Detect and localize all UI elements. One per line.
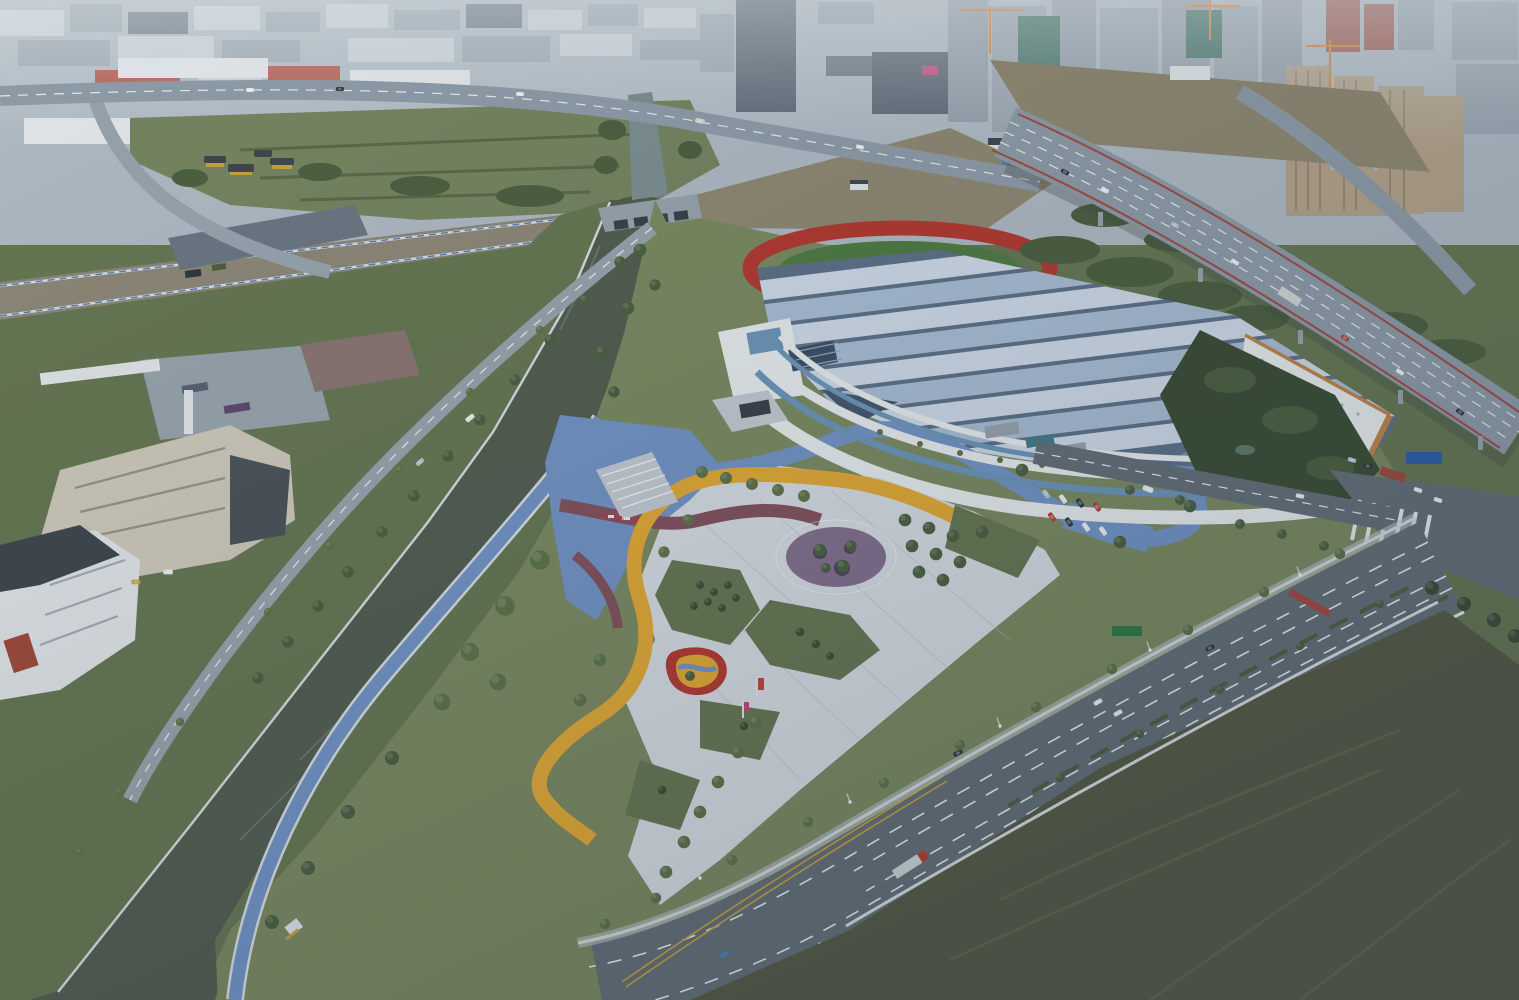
dusk-color-grade: [0, 0, 1519, 1000]
scene-canvas: [0, 0, 1519, 1000]
aerial-photo: [0, 0, 1519, 1000]
